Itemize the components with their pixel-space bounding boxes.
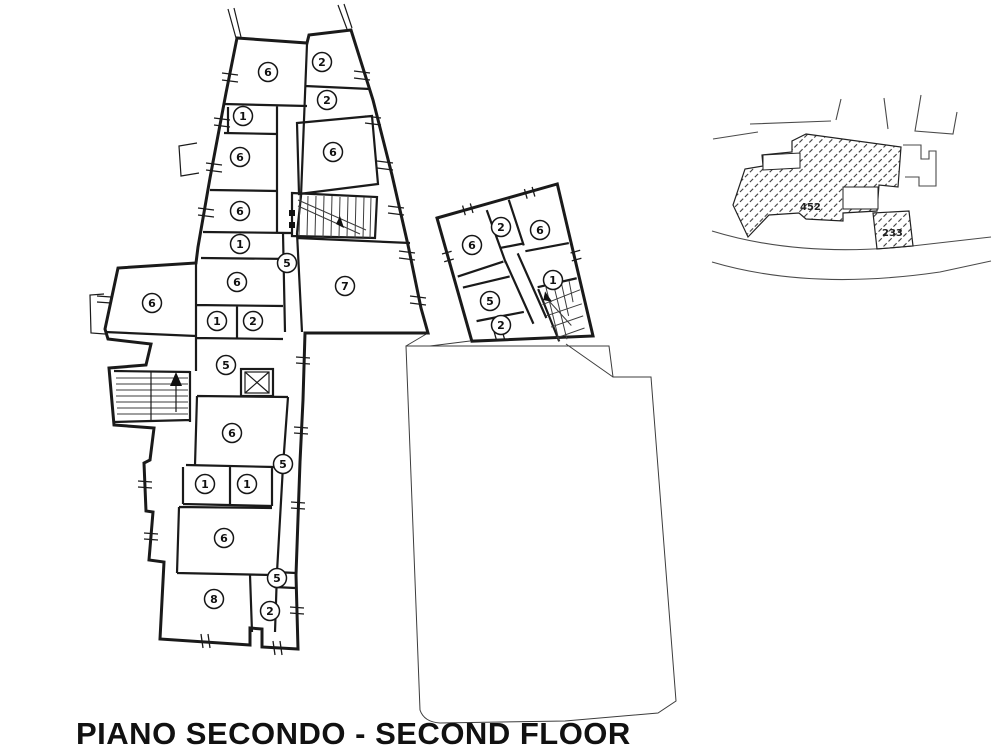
room-number: 5 [283, 257, 291, 270]
room-number: 6 [148, 297, 156, 310]
adjacent-building-outline [903, 145, 936, 186]
room-number: 2 [318, 56, 326, 69]
room-number: 6 [220, 532, 228, 545]
main-staircase [289, 193, 377, 238]
room-number: 6 [468, 239, 476, 252]
key-map: 452 233 [712, 95, 991, 280]
room-number: 6 [536, 224, 544, 237]
room-number: 2 [323, 94, 331, 107]
west-staircase [116, 372, 188, 420]
parcel-white-strip [763, 153, 800, 170]
room-number: 1 [213, 315, 221, 328]
room-number: 7 [341, 280, 349, 293]
room-number: 6 [233, 276, 241, 289]
scanned-floor-plan-page: 452 233 [0, 0, 1000, 754]
room-number: 5 [486, 295, 494, 308]
room-number: 2 [249, 315, 257, 328]
annex-building [431, 178, 604, 369]
room-labels: 62216661567612565116582626152 [143, 53, 563, 621]
room-number: 8 [210, 593, 218, 606]
annex-window-ticks [431, 178, 598, 349]
room-number: 1 [201, 478, 209, 491]
main-building [90, 4, 428, 655]
parcel-number-primary: 452 [800, 202, 821, 213]
shaft-marker [289, 210, 295, 216]
room-number: 6 [236, 151, 244, 164]
up-arrow [170, 372, 182, 386]
plan-title: PIANO SECONDO - SECOND FLOOR [76, 716, 631, 752]
room-number: 6 [329, 146, 337, 159]
room-number: 1 [236, 238, 244, 251]
shaft-marker [289, 222, 295, 228]
elevator-shaft [241, 369, 273, 396]
room-number: 2 [497, 319, 505, 332]
courtyard-outline [406, 333, 676, 723]
courtyard-boundary [406, 346, 676, 723]
room-number: 2 [497, 221, 505, 234]
room-number: 2 [266, 605, 274, 618]
balcony-stubs [90, 4, 352, 334]
room-number: 6 [264, 66, 272, 79]
room-number: 1 [549, 274, 557, 287]
room-number: 1 [239, 110, 247, 123]
room-number: 5 [222, 359, 230, 372]
parcel-courtyard-notch [843, 187, 878, 209]
room-number: 5 [279, 458, 287, 471]
room-number: 6 [236, 205, 244, 218]
room-number: 5 [273, 572, 281, 585]
room-number: 1 [243, 478, 251, 491]
parcel-number-secondary: 233 [882, 228, 903, 239]
room-number: 6 [228, 427, 236, 440]
elevator-x-icon [245, 372, 269, 393]
floor-plan-drawing: 452 233 [0, 0, 1000, 754]
